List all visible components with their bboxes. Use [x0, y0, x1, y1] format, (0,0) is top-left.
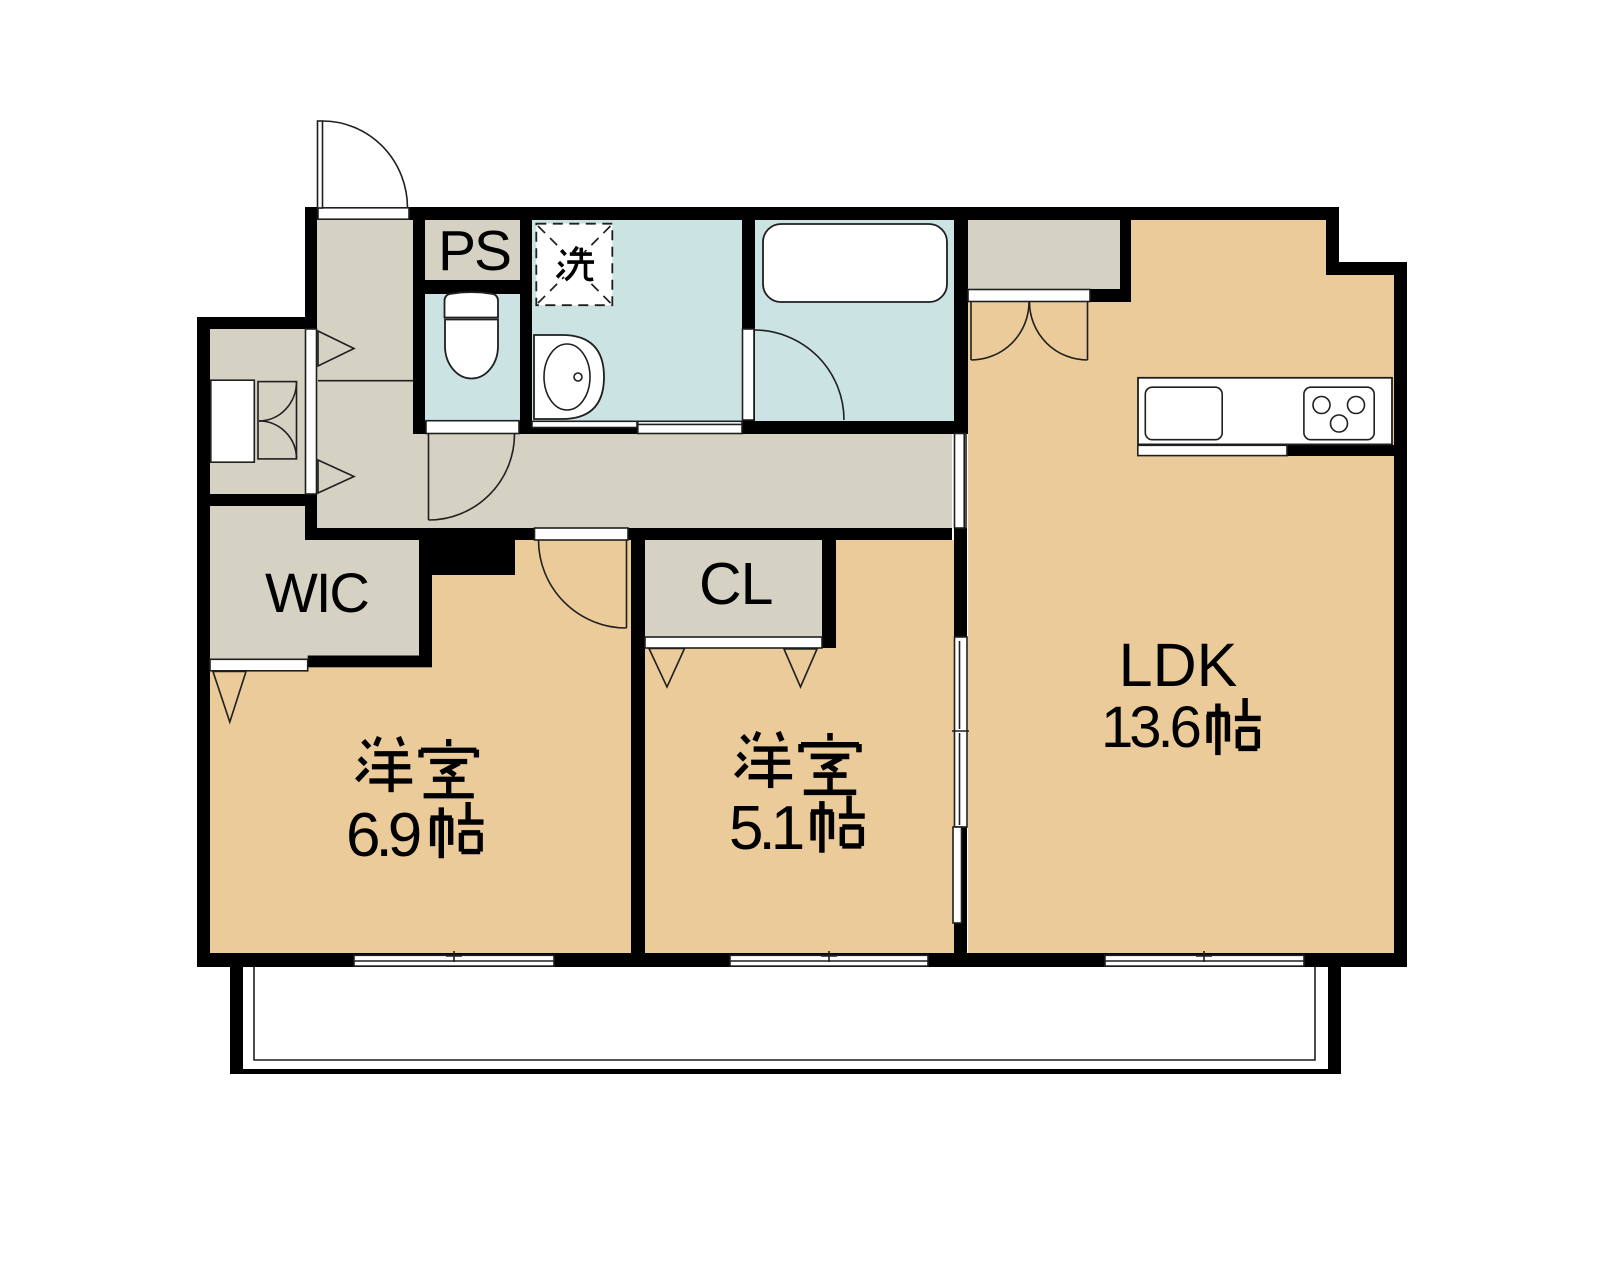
svg-text:LDK: LDK: [1119, 631, 1238, 699]
svg-text:6.9: 6.9: [346, 801, 420, 870]
svg-text:13.6: 13.6: [1101, 695, 1200, 760]
svg-text:5.1: 5.1: [729, 794, 803, 863]
svg-text:PS: PS: [438, 219, 510, 283]
svg-text:WIC: WIC: [265, 561, 368, 624]
svg-text:CL: CL: [699, 551, 772, 617]
